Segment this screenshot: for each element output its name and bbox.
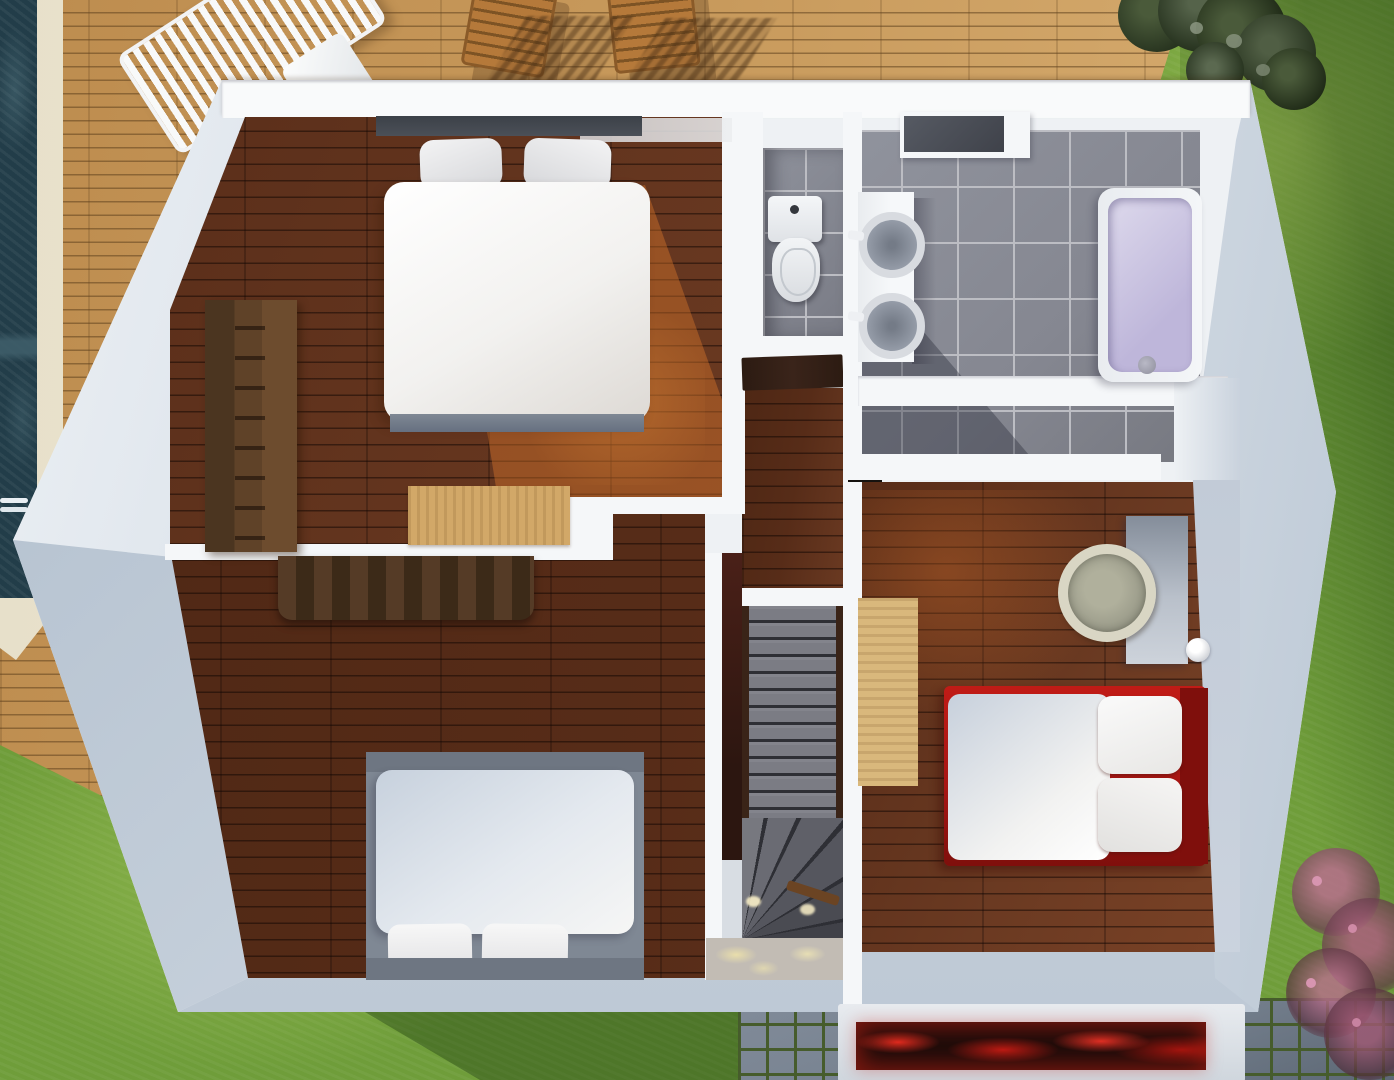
hedge-leaf-highlight [1190, 22, 1203, 34]
toilet-tank [768, 196, 822, 242]
master-rug [408, 486, 570, 545]
wall-master-right [722, 112, 745, 514]
hallway-floor [742, 388, 843, 606]
hedge-leaf-highlight [1226, 34, 1242, 48]
pool-rail [0, 507, 28, 512]
wall-wc-left [745, 112, 763, 360]
pink-flower-dot [1306, 978, 1316, 988]
bedroom2-bed-headboard [366, 958, 644, 980]
stairs-landing [706, 938, 843, 980]
flower-planter-bed [856, 1022, 1206, 1070]
floorplan-render [0, 0, 1394, 1080]
stairs-winder-steps [742, 818, 843, 940]
wall-closet-bottom [845, 454, 1161, 480]
hedge-shrub [1262, 48, 1326, 110]
sink-basin-bottom [859, 293, 925, 359]
bathtub-basin [1108, 198, 1192, 372]
bedroom2-dresser [278, 556, 534, 620]
red-bed-headboard [1180, 688, 1208, 864]
bathtub-faucet [1138, 356, 1156, 374]
pink-flower-dot [1348, 924, 1357, 933]
sink-basin-top [859, 212, 925, 278]
wall-stairs-left [705, 553, 722, 980]
red-bed-mattress [948, 694, 1110, 860]
master-bed-duvet [384, 182, 650, 422]
stairs-stringer-right [836, 606, 843, 818]
pink-flower-dot [1312, 876, 1322, 886]
pink-shrub [1282, 828, 1394, 1080]
hedge-leaf-highlight [1256, 64, 1270, 76]
desk-lamp [1186, 638, 1210, 662]
pool-rail [0, 498, 28, 503]
pink-flower-dot [1352, 1018, 1361, 1027]
red-bed-pillow-bottom [1098, 778, 1182, 852]
caustic-light-spot [746, 896, 761, 907]
master-wardrobe-shelves [235, 300, 265, 552]
toilet-seat-line [780, 248, 816, 296]
wall-closet-right [1174, 378, 1240, 480]
master-bed-footboard [390, 414, 644, 432]
stairs-stringer-left [742, 606, 749, 818]
bedroom3-rug [858, 598, 918, 786]
wall-stairs-left-shadowed [722, 553, 742, 860]
master-bed-headboard [376, 116, 642, 136]
bedroom2-duvet [376, 770, 634, 934]
bedroom2-bed-footboard [366, 752, 644, 772]
wc-door-open [741, 354, 843, 391]
stairs-top-ledge [742, 588, 843, 606]
toilet-flush-button [790, 205, 799, 214]
rattan-chair [1058, 544, 1156, 642]
caustic-light-spot [800, 904, 815, 915]
red-bed-pillow-top [1098, 696, 1182, 774]
wall-divider-upper [613, 497, 742, 514]
pool-step-band [0, 332, 37, 362]
stairs-straight-flight [742, 606, 843, 818]
wall-divider-jog [570, 497, 613, 560]
bathroom-cabinet-counter [904, 116, 1004, 152]
